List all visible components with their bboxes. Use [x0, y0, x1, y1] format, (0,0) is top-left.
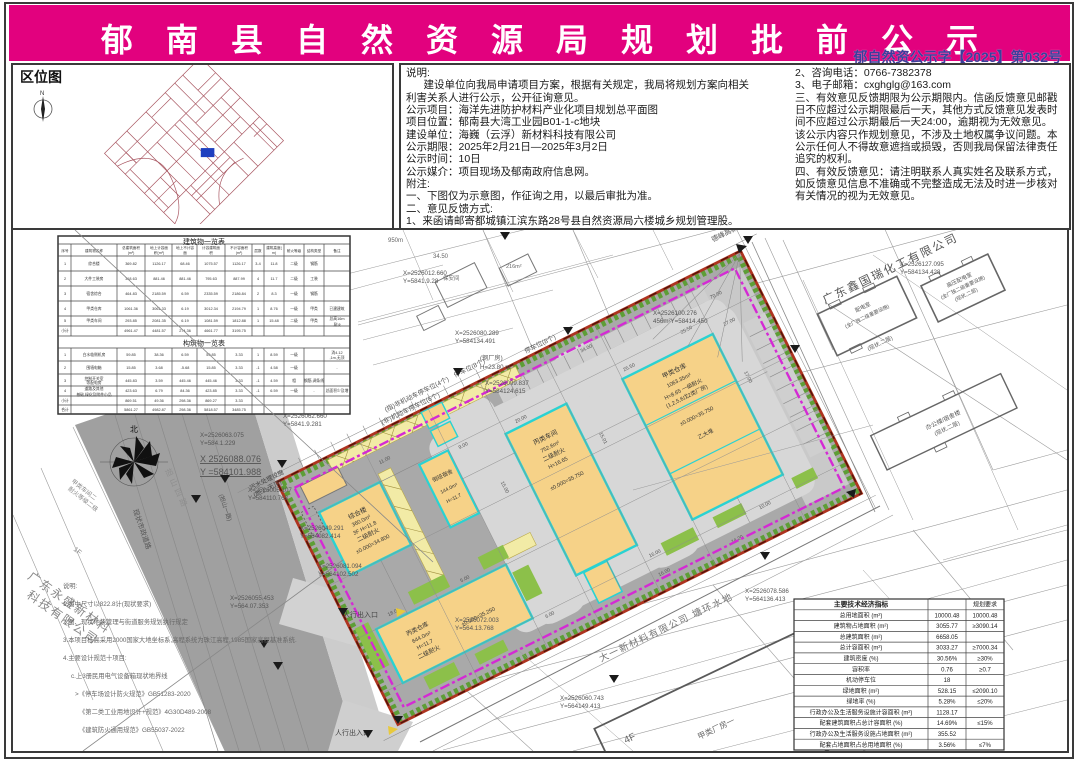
svg-text:构筑物一览表: 构筑物一览表	[183, 339, 225, 348]
svg-text:3.68: 3.68	[155, 366, 162, 370]
svg-text:Y=564.07.353: Y=564.07.353	[230, 603, 269, 610]
svg-text:6.59: 6.59	[270, 389, 277, 393]
svg-text:3.33: 3.33	[235, 366, 242, 370]
svg-text:1.图中尺寸以822.8计(现状要求): 1.图中尺寸以822.8计(现状要求)	[63, 599, 151, 608]
svg-text:1128.17: 1128.17	[936, 710, 958, 716]
svg-text:881.46: 881.46	[153, 277, 165, 281]
svg-text:X=2526063.075: X=2526063.075	[200, 432, 244, 439]
svg-text:,耐火: ,耐火	[333, 322, 342, 327]
svg-text:5861.27: 5861.27	[124, 408, 138, 412]
svg-text:4.59: 4.59	[270, 379, 277, 383]
svg-text:X=2526055.453: X=2526055.453	[230, 595, 274, 602]
svg-text:3.59: 3.59	[155, 379, 162, 383]
svg-text:总建筑面积: 总建筑面积	[122, 245, 140, 250]
svg-text:6.19: 6.19	[181, 319, 188, 323]
svg-text:Y=564082.414: Y=564082.414	[300, 533, 341, 540]
svg-text:318.63: 318.63	[125, 277, 137, 281]
svg-text:Y=584124.615: Y=584124.615	[485, 388, 526, 395]
svg-text:2.图、现状地块管理与街道服务规划执行规定: 2.图、现状地块管理与街道服务规划执行规定	[63, 617, 189, 626]
svg-text:X=2526078.586: X=2526078.586	[745, 588, 789, 595]
svg-text:合计: 合计	[61, 407, 69, 412]
svg-text:49.36: 49.36	[154, 399, 164, 403]
svg-text:二级: 二级	[290, 261, 298, 266]
svg-text:钢筋,调条线: 钢筋,调条线	[304, 378, 324, 383]
svg-text:3-4: 3-4	[255, 262, 261, 266]
svg-text:甲类: 甲类	[310, 318, 318, 323]
svg-text:建筑密度 (%): 建筑密度 (%)	[844, 655, 879, 663]
svg-text:1: 1	[257, 319, 259, 323]
svg-text:293.85: 293.85	[125, 319, 137, 323]
svg-text:容积率: 容积率	[852, 665, 870, 673]
svg-text:8.59: 8.59	[270, 353, 277, 357]
svg-text:≥7000.34: ≥7000.34	[973, 646, 999, 652]
svg-text:1: 1	[64, 353, 66, 357]
svg-text:总计容面积 (m²): 总计容面积 (m²)	[840, 644, 883, 652]
svg-text:X=2526100.276: X=2526100.276	[653, 310, 697, 317]
svg-text:68.46: 68.46	[180, 262, 190, 266]
svg-text:14.69%: 14.69%	[937, 721, 958, 727]
svg-text:≤15%: ≤15%	[977, 721, 993, 727]
svg-text:X=2526099.837: X=2526099.837	[485, 380, 529, 387]
svg-text:4: 4	[64, 307, 66, 311]
svg-text:1126.17: 1126.17	[232, 262, 245, 266]
svg-text:耐火等级: 耐火等级	[287, 248, 302, 253]
svg-text:1812.88: 1812.88	[232, 319, 246, 323]
svg-text:3: 3	[64, 379, 66, 383]
svg-text:3012.34: 3012.34	[204, 307, 218, 311]
svg-text:钢筋: 钢筋	[310, 261, 318, 266]
svg-text:二级: 二级	[290, 318, 298, 323]
svg-text:8.76: 8.76	[270, 307, 277, 311]
svg-text:456m²Y=58414.450: 456m²Y=58414.450	[653, 318, 708, 325]
svg-text:3.本项目标高采用2000国家大地坐标系,高程系统为珠江高程: 3.本项目标高采用2000国家大地坐标系,高程系统为珠江高程,1985国家高程基…	[63, 635, 297, 644]
svg-text:≥30%: ≥30%	[977, 657, 993, 663]
svg-text:基础,绿化及附件小品: 基础,绿化及附件小品	[76, 392, 111, 397]
svg-text:积(m²): 积(m²)	[154, 250, 164, 255]
svg-text:445.83: 445.83	[125, 379, 137, 383]
svg-text:59.85: 59.85	[126, 353, 136, 357]
svg-text:3485.75: 3485.75	[232, 408, 246, 412]
svg-text:2: 2	[64, 277, 66, 281]
svg-text:887.99: 887.99	[233, 277, 245, 281]
svg-text:绿地率 (%): 绿地率 (%)	[847, 698, 876, 706]
svg-text:《第二类工业用地设计+规范》4G30D489-2008: 《第二类工业用地设计+规范》4G30D489-2008	[79, 707, 212, 716]
svg-text:围墙电箱: 围墙电箱	[86, 365, 101, 370]
svg-text:Y=584.1.229: Y=584.1.229	[200, 440, 236, 447]
svg-text:X=2526072.003: X=2526072.003	[455, 617, 499, 624]
svg-text:4481.57: 4481.57	[152, 329, 166, 333]
svg-text:30.56%: 30.56%	[937, 657, 958, 663]
svg-text:5.28%: 5.28%	[938, 700, 956, 706]
svg-text:15.85: 15.85	[126, 366, 136, 370]
svg-text:Y=584134.491: Y=584134.491	[455, 338, 496, 345]
svg-text:Y =584101.988: Y =584101.988	[200, 467, 261, 477]
svg-text:-1: -1	[256, 379, 259, 383]
svg-text:355.52: 355.52	[938, 732, 957, 738]
svg-text:大件工装房: 大件工装房	[85, 276, 104, 281]
svg-text:N: N	[40, 91, 44, 97]
svg-text:6.59: 6.59	[181, 292, 188, 296]
svg-text:-1: -1	[256, 366, 259, 370]
svg-text:甲类: 甲类	[310, 306, 318, 311]
svg-text:-5.68: -5.68	[181, 366, 190, 370]
svg-text:建筑高度(: 建筑高度(	[266, 245, 282, 250]
svg-text:综合楼: 综合楼	[88, 261, 100, 266]
svg-text:298.36: 298.36	[179, 399, 191, 403]
svg-text:X=2526127.095: X=2526127.095	[900, 261, 944, 268]
svg-text:3.33: 3.33	[235, 389, 242, 393]
svg-text:二级: 二级	[290, 276, 298, 281]
svg-text:Y=5841.9.281: Y=5841.9.281	[283, 421, 322, 428]
svg-text:18: 18	[944, 678, 951, 684]
svg-text:≥0.7: ≥0.7	[979, 667, 991, 673]
svg-text:0.76: 0.76	[941, 667, 953, 673]
svg-text:主要技术经济指标: 主要技术经济指标	[834, 600, 889, 609]
svg-text:行政办公及生活服务设施计容面积 (m²): 行政办公及生活服务设施计容面积 (m²)	[810, 708, 913, 716]
svg-text:1: 1	[257, 353, 259, 357]
svg-text:8.3: 8.3	[271, 292, 276, 296]
svg-text:1081.59: 1081.59	[204, 319, 218, 323]
svg-text:甲类车间: 甲类车间	[86, 318, 101, 323]
svg-text:2081.35: 2081.35	[152, 319, 166, 323]
svg-text:3.33: 3.33	[235, 399, 242, 403]
svg-text:795.63: 795.63	[205, 277, 217, 281]
svg-text:3195.75: 3195.75	[232, 329, 246, 333]
svg-text:≤7%: ≤7%	[979, 743, 992, 749]
svg-text:2186.84: 2186.84	[232, 292, 246, 296]
svg-text:1075.57: 1075.57	[204, 262, 218, 266]
svg-text:6658.05: 6658.05	[936, 635, 958, 641]
svg-text:Y=5841.9.28: Y=5841.9.28	[403, 278, 439, 285]
svg-text:说明:: 说明:	[63, 581, 78, 590]
svg-text:(m²): (m²)	[128, 251, 135, 255]
svg-text:445.46: 445.46	[179, 379, 191, 383]
svg-text:869.27: 869.27	[205, 399, 217, 403]
svg-text:4982.87: 4982.87	[152, 408, 166, 412]
svg-text:m): m)	[272, 251, 276, 255]
svg-text:Y=584110.768: Y=584110.768	[248, 495, 289, 502]
svg-text:Y=564102.502: Y=564102.502	[318, 571, 359, 578]
svg-text:总用地面积 (m²): 总用地面积 (m²)	[840, 611, 883, 619]
svg-text:小计: 小计	[61, 398, 69, 403]
svg-text:3.33: 3.33	[235, 353, 242, 357]
svg-text:4961.47: 4961.47	[124, 329, 138, 333]
svg-text:消4.12: 消4.12	[331, 350, 342, 355]
svg-text:不计容面积: 不计容面积	[230, 245, 248, 250]
svg-text:《建筑防火通用规范》GB55037-2022: 《建筑防火通用规范》GB55037-2022	[79, 725, 185, 734]
svg-text:3055.77: 3055.77	[936, 624, 958, 630]
svg-text:84.36: 84.36	[180, 389, 190, 393]
svg-text:X=2526012.660: X=2526012.660	[403, 270, 447, 277]
svg-text:建筑物名称: 建筑物名称	[85, 248, 103, 253]
svg-text:甲类仓库: 甲类仓库	[86, 306, 101, 311]
svg-text:4: 4	[257, 277, 259, 281]
svg-text:38.36: 38.36	[154, 353, 164, 357]
svg-text:机动停车位: 机动停车位	[846, 676, 876, 684]
svg-text:3.56%: 3.56%	[938, 743, 956, 749]
svg-text:一级: 一级	[290, 388, 298, 393]
svg-text:10000.48: 10000.48	[972, 613, 998, 619]
svg-text:Y=564149.413: Y=564149.413	[560, 703, 601, 710]
svg-text:白水临侧机房: 白水临侧机房	[83, 352, 106, 357]
svg-text:Y=564136.413: Y=564136.413	[745, 596, 786, 603]
svg-text:11.7: 11.7	[270, 277, 277, 281]
svg-text:34.50: 34.50	[433, 254, 449, 260]
svg-text:>《停车场设计防火规范》GB51283-2020: >《停车场设计防火规范》GB51283-2020	[75, 689, 191, 698]
svg-text:小计: 小计	[61, 328, 69, 333]
svg-text:≤20%: ≤20%	[977, 700, 993, 706]
svg-text:4.主要设计规范十项目:: 4.主要设计规范十项目:	[63, 653, 127, 662]
svg-text:建筑物占地面积 (m²): 建筑物占地面积 (m²)	[834, 622, 889, 630]
svg-text:1: 1	[257, 307, 259, 311]
svg-text:计容建筑面: 计容建筑面	[202, 245, 220, 250]
svg-text:1: 1	[64, 262, 66, 266]
svg-text:序号: 序号	[61, 248, 69, 253]
svg-text:6.19: 6.19	[181, 307, 188, 311]
svg-text:一级: 一级	[290, 365, 298, 370]
svg-text:≤2090.10: ≤2090.10	[973, 689, 999, 695]
svg-text:423.63: 423.63	[125, 389, 137, 393]
svg-text:15.85: 15.85	[206, 366, 216, 370]
svg-text:6.59: 6.59	[181, 353, 188, 357]
svg-text:总面积少及增: 总面积少及增	[326, 388, 349, 393]
svg-text:4: 4	[64, 389, 66, 393]
svg-text:X=2526080.289: X=2526080.289	[455, 330, 499, 337]
svg-text:一级: 一级	[290, 306, 298, 311]
svg-text:结构类型: 结构类型	[307, 248, 322, 253]
svg-text:宿舍综合: 宿舍综合	[86, 291, 101, 296]
svg-text:4661.77: 4661.77	[204, 329, 218, 333]
svg-text:人行出入口: 人行出入口	[343, 610, 378, 619]
svg-text:5818.57: 5818.57	[204, 408, 218, 412]
svg-text:216m²: 216m²	[506, 264, 522, 270]
svg-text:X=2526005.107: X=2526005.107	[248, 487, 292, 494]
svg-text:Y=584134.428: Y=584134.428	[900, 269, 941, 276]
svg-text:备注: 备注	[333, 248, 341, 253]
svg-text:总建筑面积 (m²): 总建筑面积 (m²)	[840, 633, 883, 641]
svg-text:Y=564.13.768: Y=564.13.768	[455, 625, 494, 632]
svg-text:配套占地面积占总用地面积 (%): 配套占地面积占总用地面积 (%)	[820, 741, 903, 749]
svg-text:相: 相	[292, 378, 296, 383]
svg-text:2: 2	[64, 366, 66, 370]
svg-text:2335.59: 2335.59	[204, 292, 218, 296]
svg-text:3033.27: 3033.27	[936, 646, 958, 652]
svg-text:3: 3	[64, 292, 66, 296]
svg-text:881.46: 881.46	[179, 277, 191, 281]
svg-text:H=23.80 m: H=23.80 m	[480, 364, 510, 371]
svg-text:X=2526060.743: X=2526060.743	[560, 695, 604, 702]
svg-text:绿地面积 (m²): 绿地面积 (m²)	[843, 687, 880, 695]
svg-text:369.82: 369.82	[125, 262, 137, 266]
svg-text:,1m,无顶: ,1m,无顶	[330, 355, 345, 360]
svg-text:464.83: 464.83	[125, 292, 137, 296]
svg-text:-1: -1	[256, 389, 259, 393]
svg-text:X=2526081.094: X=2526081.094	[318, 563, 362, 570]
svg-text:6.79: 6.79	[155, 389, 162, 393]
svg-text:5: 5	[64, 319, 66, 323]
svg-text:298.36: 298.36	[179, 408, 191, 412]
svg-text:2194.79: 2194.79	[232, 307, 246, 311]
svg-text:1126.17: 1126.17	[152, 262, 165, 266]
svg-text:2: 2	[257, 292, 259, 296]
svg-text:总高16m: 总高16m	[330, 316, 345, 321]
svg-text:配套建筑面积占总计容面积 (%): 配套建筑面积占总计容面积 (%)	[820, 719, 903, 727]
svg-text:规划要求: 规划要求	[973, 601, 997, 609]
svg-text:积: 积	[209, 250, 213, 255]
svg-text:423.85: 423.85	[205, 389, 217, 393]
svg-text:4.58: 4.58	[270, 366, 277, 370]
svg-text:工装: 工装	[310, 276, 318, 281]
svg-text:已建建筑: 已建建筑	[329, 306, 344, 311]
svg-text:(m²): (m²)	[236, 251, 243, 255]
svg-text:钢筋: 钢筋	[310, 291, 318, 296]
svg-text:(钢厂房): (钢厂房)	[480, 354, 503, 362]
svg-text:11.8: 11.8	[270, 262, 277, 266]
svg-text:层数: 层数	[254, 248, 262, 253]
svg-text:c.上3册民用电气设备箱现状地界线: c.上3册民用电气设备箱现状地界线	[71, 671, 168, 680]
svg-text:≥3090.14: ≥3090.14	[973, 624, 999, 630]
svg-text:面: 面	[183, 250, 187, 255]
svg-text:X=2526049.291: X=2526049.291	[300, 525, 344, 532]
svg-text:等配电房: 等配电房	[86, 380, 101, 385]
svg-text:地上计容面: 地上计容面	[150, 245, 168, 250]
svg-text:行政办公及生活服务设施占地面积 (m²): 行政办公及生活服务设施占地面积 (m²)	[810, 730, 913, 738]
svg-text:X 2526088.076: X 2526088.076	[200, 454, 261, 464]
svg-text:15.48: 15.48	[269, 319, 279, 323]
svg-text:1061.36: 1061.36	[124, 307, 138, 311]
svg-text:建筑物一览表: 建筑物一览表	[183, 237, 225, 246]
svg-text:地上不计容: 地上不计容	[176, 245, 194, 250]
svg-text:528.15: 528.15	[938, 689, 957, 695]
svg-text:869.51: 869.51	[125, 399, 137, 403]
svg-text:一级: 一级	[290, 352, 298, 357]
svg-text:10000.48: 10000.48	[934, 613, 960, 619]
svg-text:一级: 一级	[290, 291, 298, 296]
svg-text:2185.59: 2185.59	[152, 292, 166, 296]
svg-text:950m: 950m	[388, 238, 403, 244]
svg-text:445.46: 445.46	[205, 379, 217, 383]
svg-text:道路及其他: 道路及其他	[85, 386, 104, 391]
svg-text:北: 北	[130, 425, 138, 434]
